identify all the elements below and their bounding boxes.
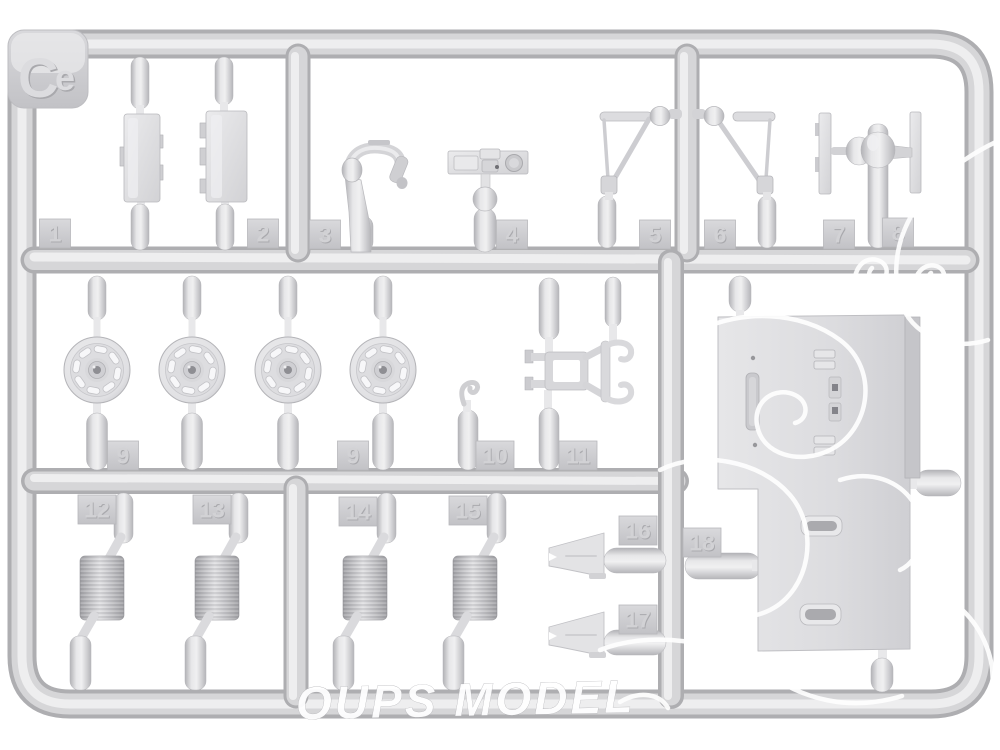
sprue-stem	[374, 276, 392, 320]
sprue-stem	[539, 408, 559, 470]
tab-number: 17	[625, 607, 651, 633]
sprue-stem	[539, 278, 559, 340]
sprue-stem	[278, 413, 299, 470]
sprue-stem	[216, 204, 234, 250]
tab-number: 11	[566, 443, 591, 469]
part-tab-1: 11	[40, 219, 71, 248]
sprue-stem	[458, 410, 478, 470]
sprue-stem	[131, 204, 149, 250]
part-tab-15: 1515	[449, 496, 487, 525]
sprue-stem	[182, 413, 203, 470]
sprue-scene: 1122334455667788999910101111121213131414…	[0, 0, 1000, 750]
part-1-block	[120, 114, 163, 202]
stem-neck	[380, 317, 387, 338]
part-tab-18: 1818	[683, 528, 721, 557]
panel-handle-slot-bottom	[800, 604, 841, 625]
gate-letter-C: C	[18, 46, 58, 109]
stem-neck	[379, 403, 387, 414]
gate-label-tab: C C e e	[8, 30, 88, 111]
sprue-stem	[598, 196, 616, 248]
panel-right-stub	[915, 470, 961, 496]
panel-top-stem	[729, 276, 751, 312]
part-tab-3: 33	[310, 220, 341, 249]
sprue-stem	[215, 57, 233, 105]
tab-number: 3	[319, 222, 332, 248]
bracket-16-stem	[604, 548, 666, 573]
stem-neck	[93, 403, 101, 414]
sprue-stem	[87, 413, 108, 470]
stem-neck	[188, 403, 196, 414]
tab-number: 10	[482, 443, 508, 469]
road-wheel-part	[159, 337, 225, 403]
panel-bottom-stem	[871, 658, 893, 692]
part-tab-4: 44	[497, 220, 528, 249]
part-tab-9-b: 99	[338, 441, 369, 470]
tab-number: 14	[345, 499, 371, 525]
part-tab-10: 1010	[476, 441, 514, 470]
sprue-stem	[88, 276, 106, 320]
tab-number: 1	[49, 221, 62, 247]
tab-number: 16	[625, 518, 651, 544]
road-wheel-part	[64, 337, 130, 403]
part-tab-11: 1111	[559, 441, 597, 470]
watermark-text: OUPS MODEL	[295, 670, 635, 729]
part-tab-9: 99	[108, 441, 139, 470]
tab-number: 18	[689, 530, 715, 556]
road-wheel-part	[350, 337, 416, 403]
tab-number: 13	[199, 497, 225, 523]
tab-number: 2	[257, 221, 270, 247]
part-tab-12: 1212	[78, 495, 116, 524]
part-tab-13: 1313	[193, 495, 231, 524]
tab-number: 7	[833, 222, 846, 248]
sprue-photo: 1122334455667788999910101111121213131414…	[0, 0, 1000, 750]
part-2-block	[200, 111, 247, 202]
stem-neck	[284, 403, 292, 414]
sprue-stem	[758, 196, 776, 248]
part-tab-5: 55	[640, 220, 671, 249]
part-tab-2: 22	[248, 219, 279, 248]
tab-number: 5	[649, 222, 662, 248]
sprue-stem	[131, 57, 149, 109]
stem-neck	[94, 317, 101, 338]
sprue-stem	[373, 413, 394, 470]
sprue-stem	[474, 208, 496, 252]
part-tab-14: 1414	[339, 497, 377, 526]
stem-neck	[189, 317, 196, 338]
road-wheel-part	[255, 337, 321, 403]
tab-number: 9	[347, 443, 360, 469]
tab-number: 15	[455, 498, 481, 524]
part-tab-16: 1616	[619, 516, 657, 545]
tab-number: 6	[714, 222, 727, 248]
sprue-stem	[605, 277, 621, 327]
stem-neck	[910, 477, 917, 489]
stem-neck	[545, 337, 553, 353]
gate-letter-e: e	[55, 57, 75, 98]
part-tab-7: 77	[824, 220, 855, 249]
stem-neck	[285, 317, 292, 338]
part-tab-17: 1717	[619, 605, 657, 634]
part-tab-6: 66	[705, 220, 736, 249]
tab-number: 12	[84, 497, 110, 523]
tab-number: 9	[117, 443, 130, 469]
sprue-stem	[279, 276, 297, 320]
sprue-stem	[183, 276, 201, 320]
tab-number: 4	[506, 222, 519, 248]
stem-neck	[544, 390, 552, 410]
